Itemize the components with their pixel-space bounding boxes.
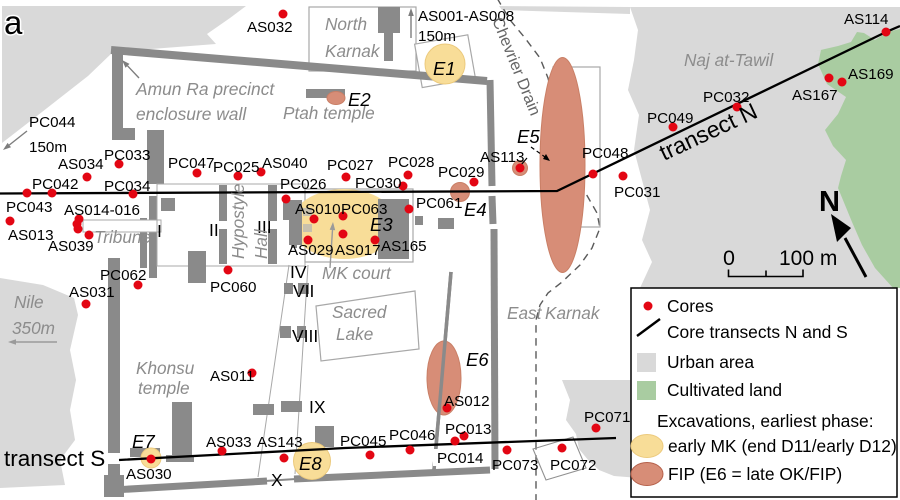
svg-text:Khonsu: Khonsu	[136, 358, 195, 378]
svg-text:PC028: PC028	[388, 154, 434, 171]
svg-text:East: East	[507, 303, 543, 323]
svg-text:Urban area: Urban area	[667, 352, 754, 372]
svg-text:AS165: AS165	[381, 238, 427, 255]
svg-text:150m: 150m	[418, 28, 456, 45]
svg-text:PC033: PC033	[104, 147, 150, 164]
svg-text:VII: VII	[293, 281, 314, 301]
svg-text:AS029: AS029	[288, 242, 334, 259]
svg-text:PC042: PC042	[32, 176, 78, 193]
svg-text:AS011: AS011	[210, 368, 254, 385]
svg-text:Excavations, earliest phase:: Excavations, earliest phase:	[657, 411, 874, 431]
svg-text:AS034: AS034	[58, 156, 104, 173]
svg-text:Tribune: Tribune	[94, 227, 151, 247]
svg-text:PC031: PC031	[614, 184, 660, 201]
svg-text:PC013: PC013	[445, 421, 491, 438]
svg-text:PC043: PC043	[6, 199, 52, 216]
svg-text:a: a	[4, 4, 23, 41]
svg-text:AS014-016: AS014-016	[64, 202, 140, 219]
svg-text:North: North	[325, 14, 367, 34]
svg-text:PC048: PC048	[582, 145, 628, 162]
svg-text:Sacred: Sacred	[332, 302, 388, 322]
svg-text:VIII: VIII	[292, 326, 318, 346]
svg-text:PC030: PC030	[355, 175, 401, 192]
svg-text:PC027: PC027	[327, 157, 373, 174]
svg-text:PC072: PC072	[550, 457, 596, 474]
svg-text:Karnak: Karnak	[545, 303, 601, 323]
svg-text:AS039: AS039	[48, 238, 94, 255]
svg-text:PC073: PC073	[492, 457, 538, 474]
svg-text:AS030: AS030	[126, 466, 172, 483]
svg-text:AS013: AS013	[8, 227, 54, 244]
svg-text:E6: E6	[466, 349, 489, 370]
svg-text:FIP (E6 = late OK/FIP): FIP (E6 = late OK/FIP)	[668, 464, 842, 484]
svg-text:Lake: Lake	[336, 324, 373, 344]
svg-text:N: N	[819, 186, 840, 218]
svg-text:PC049: PC049	[647, 110, 693, 127]
svg-text:E8: E8	[299, 453, 322, 474]
svg-text:early MK (end D11/early D12): early MK (end D11/early D12)	[668, 436, 897, 456]
svg-text:PC044: PC044	[29, 114, 75, 131]
svg-text:Ptah temple: Ptah temple	[283, 103, 375, 123]
svg-text:Naj at-Tawil: Naj at-Tawil	[684, 50, 774, 70]
svg-text:MK court: MK court	[322, 263, 392, 283]
svg-text:AS040: AS040	[262, 155, 308, 172]
svg-text:Core transects N and S: Core transects N and S	[667, 322, 848, 342]
svg-text:II: II	[209, 220, 219, 240]
svg-text:E7: E7	[132, 431, 155, 452]
svg-text:AS010: AS010	[295, 201, 341, 218]
svg-text:AS032: AS032	[247, 19, 293, 36]
svg-text:AS031: AS031	[69, 284, 115, 301]
svg-text:AS012: AS012	[444, 393, 490, 410]
svg-text:temple: temple	[138, 378, 190, 398]
svg-text:E4: E4	[464, 199, 487, 220]
svg-text:Amun Ra precinct: Amun Ra precinct	[135, 79, 275, 99]
svg-text:AS017: AS017	[335, 242, 381, 259]
svg-text:AS113: AS113	[480, 149, 524, 166]
svg-text:0: 0	[723, 246, 735, 270]
svg-text:150m: 150m	[29, 139, 67, 156]
svg-text:AS114: AS114	[844, 11, 888, 28]
svg-text:350m: 350m	[12, 318, 55, 338]
svg-text:IV: IV	[290, 262, 307, 282]
svg-text:Nile: Nile	[14, 292, 44, 312]
svg-text:Cores: Cores	[667, 296, 714, 316]
svg-text:PC061: PC061	[416, 195, 462, 212]
svg-text:Cultivated land: Cultivated land	[667, 380, 782, 400]
svg-text:100 m: 100 m	[779, 247, 837, 270]
svg-text:PC045: PC045	[340, 433, 386, 450]
svg-text:Hypostyle: Hypostyle	[228, 184, 248, 259]
svg-text:PC014: PC014	[437, 450, 483, 467]
svg-text:AS033: AS033	[206, 434, 252, 451]
svg-text:Karnak: Karnak	[325, 41, 381, 61]
svg-text:PC046: PC046	[389, 427, 435, 444]
svg-text:I: I	[157, 221, 162, 241]
svg-text:AS143: AS143	[257, 434, 303, 451]
svg-text:PC071: PC071	[584, 409, 630, 426]
svg-text:PC025: PC025	[213, 159, 259, 176]
svg-text:PC047: PC047	[168, 155, 214, 172]
svg-text:AS167: AS167	[792, 87, 838, 104]
svg-text:transect S: transect S	[4, 446, 105, 471]
svg-text:E1: E1	[433, 58, 456, 79]
svg-text:PC026: PC026	[280, 176, 326, 193]
svg-text:E3: E3	[370, 214, 393, 235]
svg-text:PC060: PC060	[210, 279, 256, 296]
svg-text:AS169: AS169	[848, 66, 894, 83]
svg-text:PC029: PC029	[438, 164, 484, 181]
svg-text:E5: E5	[517, 126, 540, 147]
svg-text:X: X	[271, 470, 283, 490]
svg-text:Hall: Hall	[251, 228, 271, 259]
svg-text:PC034: PC034	[104, 178, 150, 195]
svg-text:PC062: PC062	[100, 267, 146, 284]
svg-text:enclosure wall: enclosure wall	[136, 104, 247, 124]
svg-text:IX: IX	[309, 397, 326, 417]
